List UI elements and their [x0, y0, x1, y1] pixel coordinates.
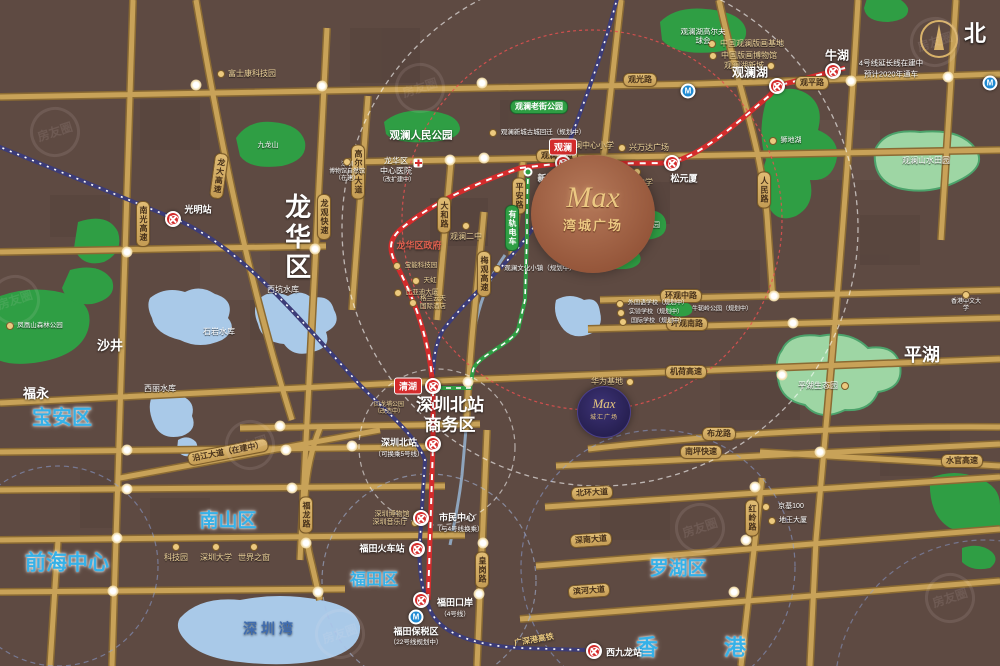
station-sub-label: （4号线） [440, 608, 470, 618]
poi-dot-icon [212, 543, 220, 551]
station-rail-icon [586, 643, 602, 659]
poi-dot-icon [172, 543, 180, 551]
road-badge: 观光路 [623, 73, 657, 87]
poi-dot-icon [217, 70, 225, 78]
compass: 北 [912, 12, 992, 62]
road-junction-dot [477, 78, 488, 89]
road-badge: 高尔夫大道 [351, 145, 365, 200]
station-rail-icon [769, 78, 785, 94]
road-junction-dot [310, 244, 321, 255]
station-label: 清湖 [394, 378, 422, 395]
poi-dot-icon [762, 503, 770, 511]
poi-dot-icon [616, 300, 624, 308]
station-rail-icon [165, 211, 181, 227]
station-label: 牛湖 [825, 47, 849, 64]
road-junction-dot [301, 538, 312, 549]
road-junction-dot [729, 587, 740, 598]
station-rail-icon [425, 378, 441, 394]
road-badge: 福龙路 [299, 497, 313, 534]
map-base-layer [0, 0, 1000, 666]
poi-dot-icon [250, 543, 258, 551]
station-label: 光明站 [184, 203, 211, 216]
station-label: 福田口岸 [437, 596, 473, 609]
poi-dot-icon [709, 52, 717, 60]
road-badge: 观平路 [795, 76, 829, 90]
road-junction-dot [275, 421, 286, 432]
station-label: 西九龙站 [606, 646, 642, 659]
poi-dot-icon [462, 222, 470, 230]
road-badge: 布龙路 [702, 427, 736, 441]
poi-dot-icon [708, 40, 716, 48]
poi-dot-icon [489, 129, 497, 137]
road-junction-dot [445, 155, 456, 166]
road-badge: 有轨电车 [505, 205, 519, 251]
station-rail-icon [825, 63, 841, 79]
road-junction-dot [122, 484, 133, 495]
road-badge: 南光高速 [136, 201, 150, 247]
rail-extension-note-line2: 预计2020年通车 [864, 69, 918, 80]
station-label: 深圳北站 [381, 436, 417, 449]
road-junction-dot [122, 445, 133, 456]
road-junction-dot [815, 447, 826, 458]
project-sub-name: 城汇广场 [578, 412, 630, 421]
road-junction-dot [108, 586, 119, 597]
road-junction-dot [287, 483, 298, 494]
road-junction-dot [463, 377, 474, 388]
road-badge: 北环大道 [571, 485, 614, 501]
poi-dot-icon [768, 517, 776, 525]
road-junction-dot [191, 80, 202, 91]
road-junction-dot [313, 587, 324, 598]
road-badge: 机荷高速 [665, 365, 707, 379]
station-metro-icon: M [409, 610, 424, 625]
project-logo: Max [531, 181, 655, 215]
road-junction-dot [777, 370, 788, 381]
station-label: 福田火车站 [359, 542, 404, 555]
road-junction-dot [479, 153, 490, 164]
poi-dot-icon [393, 262, 401, 270]
road-junction-dot [846, 76, 857, 87]
road-junction-dot [769, 291, 780, 302]
road-junction-dot [122, 247, 133, 258]
road-junction-dot [317, 81, 328, 92]
road-fills [0, 0, 1000, 666]
road-badge: 观澜老街公园 [510, 100, 568, 114]
poi-dot-icon [617, 309, 625, 317]
project-sub-logo: Max [578, 396, 630, 412]
road-badge: 人民路 [757, 172, 771, 209]
station-sub-label: （22号线规划中） [390, 636, 443, 646]
project-marker-secondary: Max 城汇广场 [577, 386, 631, 438]
station-rail-icon [413, 510, 429, 526]
poi-dot-icon [343, 158, 351, 166]
poi-dot-icon [618, 144, 626, 152]
project-name: 湾城广场 [531, 215, 655, 234]
poi-dot-icon [619, 318, 627, 326]
station-metro-icon: M [983, 76, 998, 91]
road-badge: 滨河大道 [568, 583, 611, 600]
road-junction-dot [474, 589, 485, 600]
poi-dot-icon [409, 299, 417, 307]
location-map: 宝安区前海中心南山区福田区罗湖区香 港龙华区平湖深圳北站 商务区观澜人民公园深 … [0, 0, 1000, 666]
road-badge: 水官高速 [941, 454, 983, 468]
poi-dot-icon [394, 289, 402, 297]
road-badge: 大和路 [437, 197, 451, 234]
station-rail-icon [413, 592, 429, 608]
road-badge: 环观南路 [666, 317, 708, 331]
road-junction-dot [943, 72, 954, 83]
road-junction-dot [750, 482, 761, 493]
poi-dot-icon [769, 137, 777, 145]
project-marker-main: Max 湾城广场 [531, 155, 655, 273]
road-junction-dot [281, 445, 292, 456]
road-junction-dot [112, 533, 123, 544]
poi-dot-icon [626, 378, 634, 386]
station-rail-icon [409, 541, 425, 557]
station-tram-icon [524, 168, 533, 177]
compass-north-label: 北 [964, 16, 986, 48]
station-label: 市民中心 [439, 511, 475, 524]
road-junction-dot [788, 318, 799, 329]
poi-dot-icon [841, 382, 849, 390]
station-metro-icon: M [681, 84, 696, 99]
station-sub-label: （可换乘5号线） [374, 448, 423, 458]
station-label: 观澜湖 [732, 64, 768, 81]
road-badge: 皇岗路 [475, 552, 489, 589]
poi-dot-icon [6, 322, 14, 330]
road-badge: 环观中路 [660, 289, 702, 303]
road-badge: 龙观快速 [317, 194, 331, 240]
road-badge: 梅观高速 [477, 251, 491, 297]
station-rail-icon [664, 155, 680, 171]
road-junction-dot [347, 441, 358, 452]
poi-dot-icon [493, 265, 501, 273]
station-rail-icon [425, 436, 441, 452]
road-badge: 南坪快速 [680, 445, 722, 459]
road-badge: 深南大道 [570, 532, 613, 549]
poi-dot-icon [962, 291, 970, 299]
road-badge: 红岭路 [745, 500, 759, 537]
station-label: 松元厦 [670, 172, 697, 185]
station-sub-label: （与4号线换乘） [434, 523, 483, 533]
hospital-cross-icon [414, 159, 423, 168]
compass-needle-icon [934, 24, 944, 50]
road-junction-dot [478, 538, 489, 549]
station-label: 观澜 [549, 139, 577, 156]
poi-dot-icon [767, 62, 775, 70]
poi-dot-icon [412, 277, 420, 285]
